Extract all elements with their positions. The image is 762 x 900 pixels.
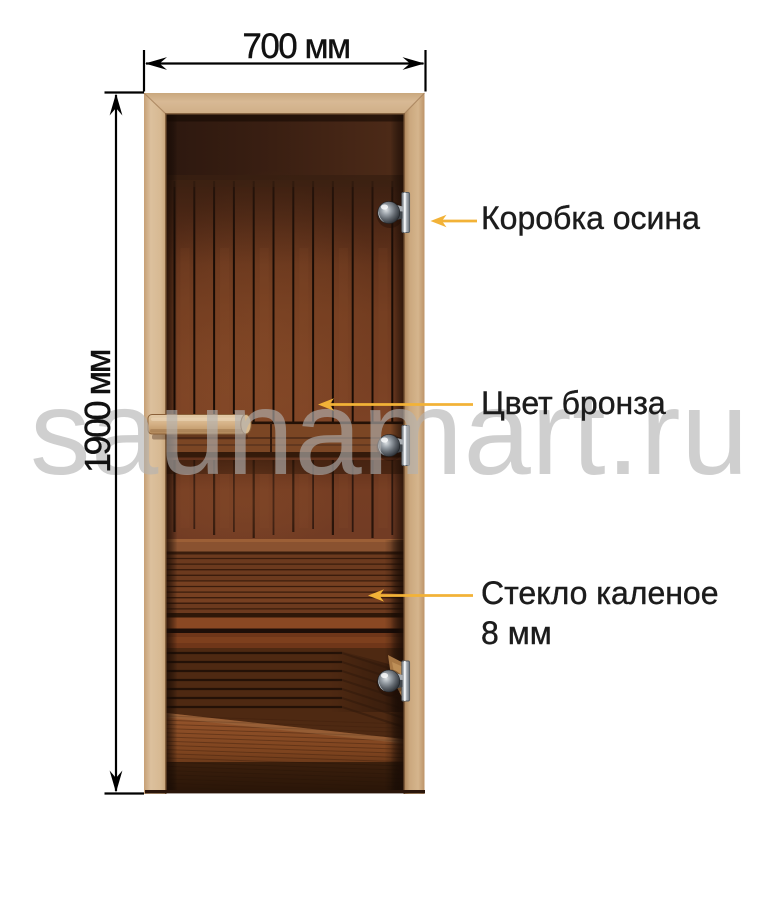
svg-text:700 мм: 700 мм [242,27,349,66]
svg-text:1900 мм: 1900 мм [77,350,118,473]
